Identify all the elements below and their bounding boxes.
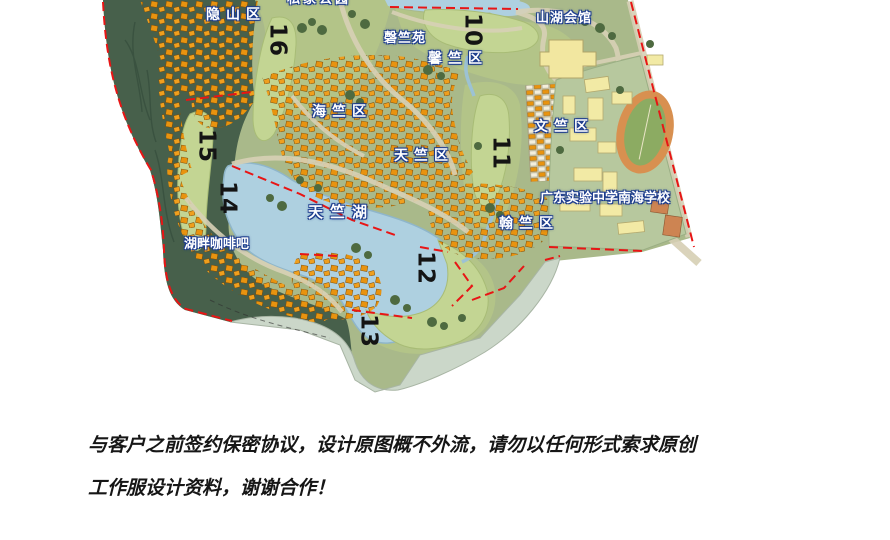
map-label-hanzhu-district: 翰竺区 [499,217,559,232]
map-label-xinzhu-district: 馨竺区 [428,52,488,67]
golf-hole-number-15: 15 [195,129,218,163]
map-label-haizhu-district: 海竺区 [312,105,372,120]
golf-hole-number-11: 11 [489,136,512,170]
golf-hole-number-14: 14 [216,181,239,215]
map-label-school: 广东实验中学南海学校 [540,192,670,206]
map-label-yinshan-district: 隐山区 [206,8,266,23]
map-label-tianzhu-lake: 天竺湖 [308,204,374,221]
screenshot-root: 私家公园 隐山区 山湖会馆 磬竺苑 馨竺区 海竺区 文竺区 天竺区 天竺湖 广东… [0,0,890,540]
golf-hole-number-16: 16 [266,23,289,57]
confidentiality-notice-line1: 与客户之前签约保密协议，设计原图概不外流，请勿以任何形式索求原创 [88,424,808,467]
confidentiality-notice: 与客户之前签约保密协议，设计原图概不外流，请勿以任何形式索求原创 工作服设计资料… [88,424,808,510]
golf-hole-number-13: 13 [357,314,380,348]
master-plan-map: 私家公园 隐山区 山湖会馆 磬竺苑 馨竺区 海竺区 文竺区 天竺区 天竺湖 广东… [0,0,890,400]
map-label-private-park: 私家公园 [287,0,351,7]
map-label-lakeside-coffee-bar: 湖畔咖啡吧 [184,238,249,252]
confidentiality-notice-line2: 工作服设计资料，谢谢合作！ [88,467,808,510]
map-label-tianzhu-district: 天竺区 [394,149,454,164]
map-label-wenzhu-district: 文竺区 [534,120,594,135]
golf-hole-number-10: 10 [461,13,484,47]
map-label-shanhu-club: 山湖会馆 [536,12,592,26]
map-label-qingzhu-garden: 磬竺苑 [384,32,426,46]
golf-hole-number-12: 12 [414,251,437,285]
